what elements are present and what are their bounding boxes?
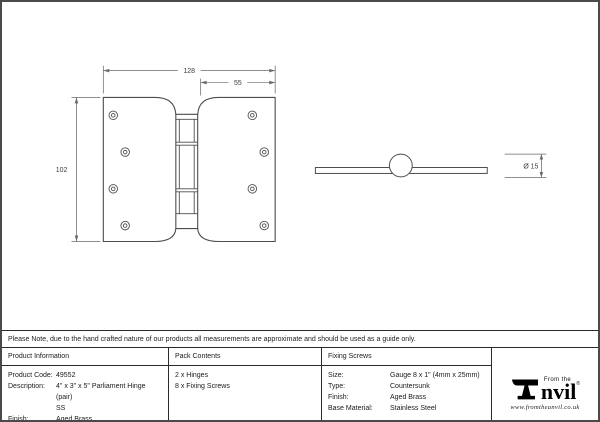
fixing-screws-cell: Size: Gauge 8 x 1" (4mm x 25mm) Type: Co… (322, 366, 492, 422)
dim-width-label: 128 (183, 68, 195, 75)
spec-sheet: 128 55 102 Ø 15 Please Note, due to the … (0, 0, 600, 422)
list-item: 2 x Hinges (175, 370, 315, 381)
header-fixing-screws: Fixing Screws (322, 348, 492, 366)
list-item: 8 x Fixing Screws (175, 381, 315, 392)
dim-inner-label: 55 (234, 80, 242, 87)
note-bar: Please Note, due to the hand crafted nat… (2, 330, 598, 348)
header-product-information: Product Information (2, 348, 169, 366)
dim-diameter-label: Ø 15 (523, 163, 538, 170)
side-view (315, 154, 487, 177)
table-row: Finish: Aged Brass (328, 392, 485, 403)
dim-height-label: 102 (56, 167, 68, 174)
front-view-dimensions (72, 66, 276, 242)
knuckle-segments (176, 119, 198, 213)
screw-holes (109, 111, 269, 230)
header-pack-contents: Pack Contents (169, 348, 322, 366)
note-text: Please Note, due to the hand crafted nat… (8, 336, 416, 343)
table-row: Description: 4" x 3" x 5" Parliament Hin… (8, 381, 162, 414)
anvil-icon (510, 376, 540, 402)
product-information-cell: Product Code: 49552 Description: 4" x 3"… (2, 366, 169, 422)
logo-website: www.fromtheanvil.co.uk (510, 404, 579, 411)
registered-trademark: ® (576, 382, 580, 387)
table-row: Type: Countersunk (328, 381, 485, 392)
table-row: Base Material: Stainless Steel (328, 403, 485, 414)
brand-logo: From the nvil ® www.fromtheanvil.co.uk (492, 348, 598, 422)
hinge-technical-drawing: 128 55 102 Ø 15 (2, 2, 598, 330)
table-row: Product Code: 49552 (8, 370, 162, 381)
table-row: Size: Gauge 8 x 1" (4mm x 25mm) (328, 370, 485, 381)
logo-name: nvil (541, 383, 576, 402)
front-view (103, 97, 275, 241)
spec-table: Product Information Pack Contents Fixing… (2, 348, 598, 420)
pack-contents-cell: 2 x Hinges 8 x Fixing Screws (169, 366, 322, 422)
table-row: Finish: Aged Brass (8, 414, 162, 422)
